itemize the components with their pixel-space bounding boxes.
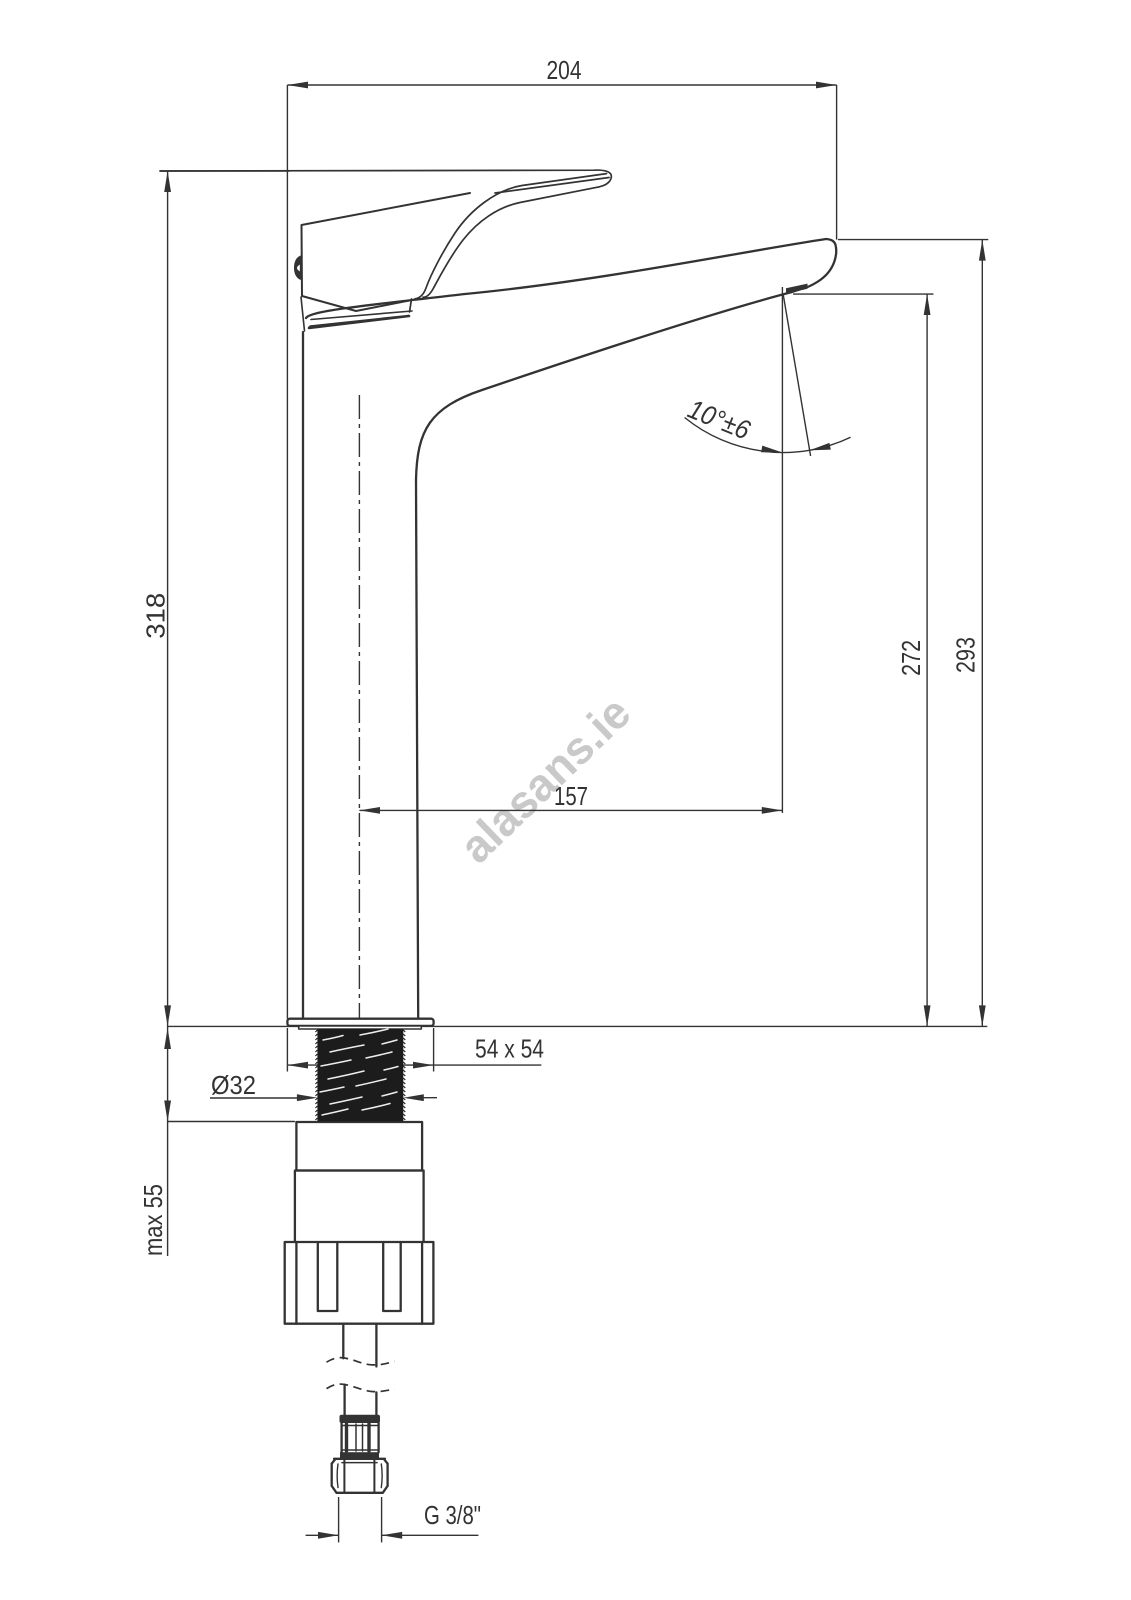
svg-text:272: 272: [896, 640, 926, 676]
svg-text:318: 318: [141, 593, 171, 639]
svg-text:157: 157: [554, 781, 588, 811]
svg-text:Ø32: Ø32: [211, 1070, 256, 1100]
svg-text:54 x 54: 54 x 54: [475, 1034, 544, 1064]
svg-text:max 55: max 55: [138, 1184, 168, 1256]
svg-text:293: 293: [950, 637, 980, 673]
svg-text:G 3/8": G 3/8": [424, 1500, 481, 1530]
svg-text:204: 204: [547, 55, 582, 85]
